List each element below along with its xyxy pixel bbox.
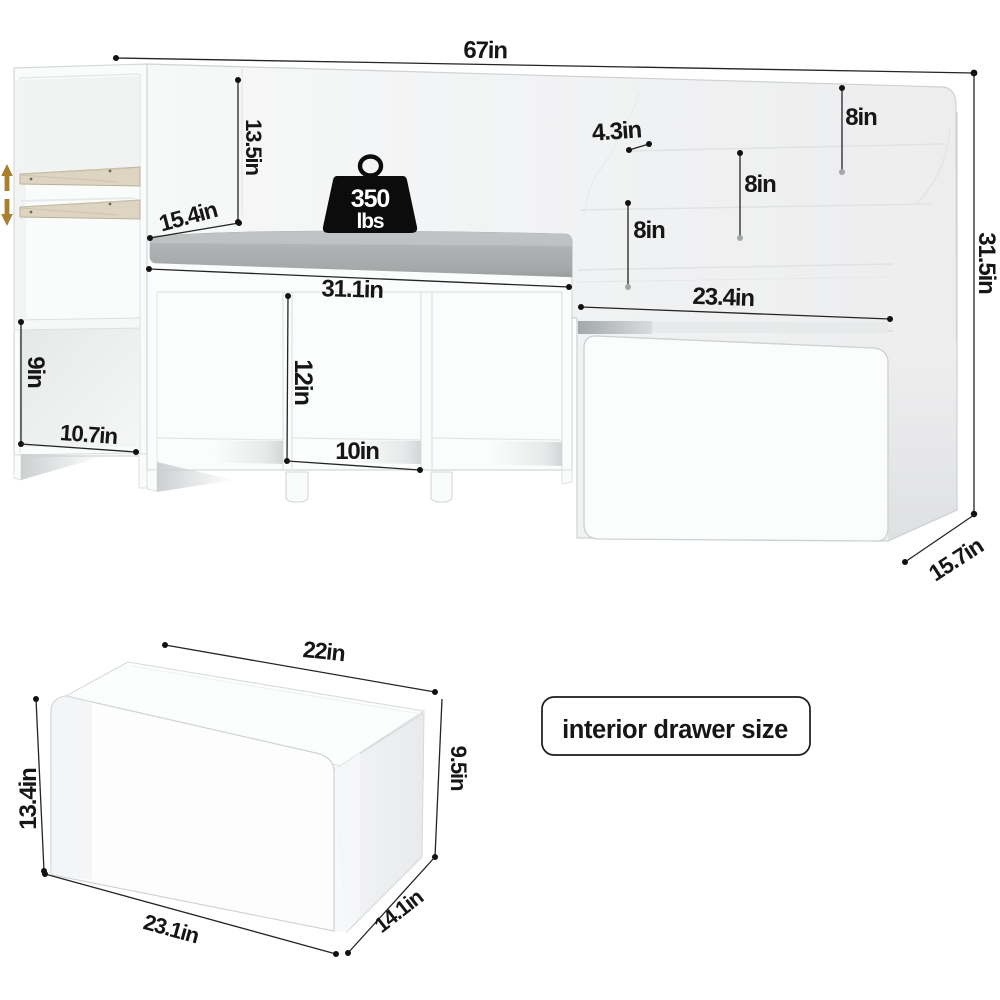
svg-text:13.5in: 13.5in [241, 119, 266, 175]
svg-text:15.7in: 15.7in [924, 532, 987, 586]
svg-text:67in: 67in [463, 37, 508, 65]
svg-text:22in: 22in [302, 636, 346, 666]
svg-text:10in: 10in [335, 438, 379, 465]
svg-text:12in: 12in [289, 359, 317, 405]
svg-text:8in: 8in [845, 104, 877, 131]
svg-text:10.7in: 10.7in [59, 420, 118, 449]
svg-text:4.3in: 4.3in [591, 116, 642, 146]
svg-text:350: 350 [351, 185, 390, 213]
svg-text:9.5in: 9.5in [446, 746, 471, 791]
svg-text:lbs: lbs [356, 210, 383, 233]
svg-text:9in: 9in [22, 356, 49, 388]
svg-text:13.4in: 13.4in [15, 768, 42, 830]
svg-text:31.1in: 31.1in [321, 275, 384, 304]
svg-text:8in: 8in [633, 217, 665, 244]
svg-text:8in: 8in [744, 171, 776, 198]
svg-text:interior drawer size: interior drawer size [562, 716, 788, 744]
svg-text:31.5in: 31.5in [973, 232, 1000, 294]
svg-text:23.4in: 23.4in [692, 283, 755, 312]
